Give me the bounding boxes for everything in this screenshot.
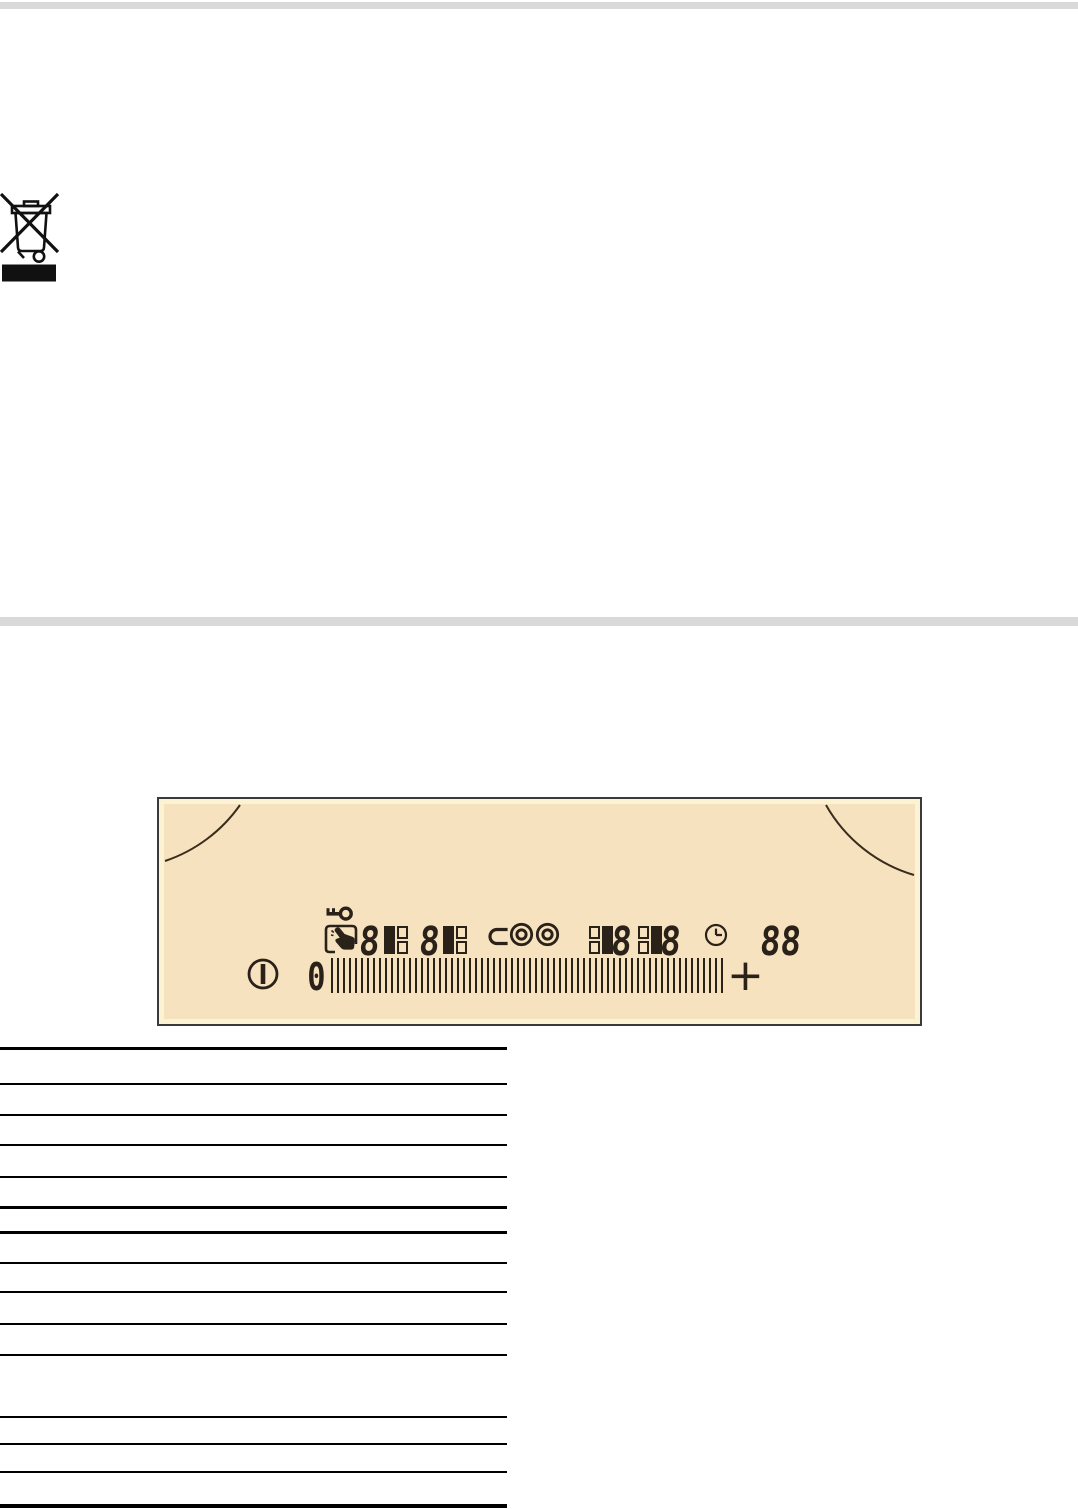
table-rule-line <box>0 1144 507 1146</box>
dot-column-outline <box>397 926 408 954</box>
zone-dot-indicator-1 <box>384 926 408 954</box>
touch-control-icon <box>323 923 359 955</box>
table-rule-line <box>0 1443 507 1445</box>
zone-dot-indicator-2 <box>443 926 467 954</box>
timer-display: 88 <box>757 919 804 955</box>
dot-column-filled <box>384 926 395 954</box>
table-rule-line <box>0 1323 507 1325</box>
table-rule-line <box>0 1471 507 1473</box>
dot-column-outline <box>638 926 649 954</box>
table-rule-line <box>0 1416 507 1418</box>
bin-wheel <box>34 251 44 261</box>
table-rule-line <box>0 1504 507 1508</box>
cooking-zone-arc-left <box>165 805 240 861</box>
table-rule-line <box>0 1206 507 1209</box>
table-rule-line <box>0 1176 507 1178</box>
table-rule-line <box>0 1114 507 1116</box>
top-divider-rule <box>0 2 1078 9</box>
extension-zone-icon <box>485 926 508 947</box>
cooking-zone-arc-right <box>826 805 914 875</box>
zone-display-2: 8 <box>417 919 442 955</box>
table-rule-line <box>0 1231 507 1234</box>
timer-clock-icon <box>704 923 728 947</box>
double-ring-zone-icon <box>509 922 534 947</box>
power-level-slider <box>331 958 724 993</box>
zone-display-3: 8 <box>609 919 634 955</box>
table-rule-line <box>0 1291 507 1293</box>
double-ring-zone-icon <box>535 922 560 947</box>
zone-display-4: 8 <box>658 919 683 955</box>
dot-column-filled <box>443 926 454 954</box>
table-rule-line <box>0 1083 507 1085</box>
section-divider-rule <box>0 617 1078 626</box>
dot-column-outline <box>456 926 467 954</box>
slider-zero-label: 0 <box>307 955 325 999</box>
bin-foot <box>18 252 24 259</box>
weee-date-bar <box>2 265 56 282</box>
manual-page: 8 8 8 8 <box>0 0 1078 1509</box>
table-rule-line <box>0 1354 507 1356</box>
key-lock-icon <box>326 903 353 921</box>
on-off-icon <box>246 957 280 991</box>
slider-plus-label: + <box>727 950 764 1001</box>
weee-crossed-bin-icon <box>0 188 62 286</box>
hob-control-panel-figure: 8 8 8 8 <box>157 797 922 1026</box>
zone-display-1: 8 <box>357 919 382 955</box>
dot-column-outline <box>589 926 600 954</box>
table-rule-line <box>0 1262 507 1264</box>
table-rule-line <box>0 1047 507 1050</box>
